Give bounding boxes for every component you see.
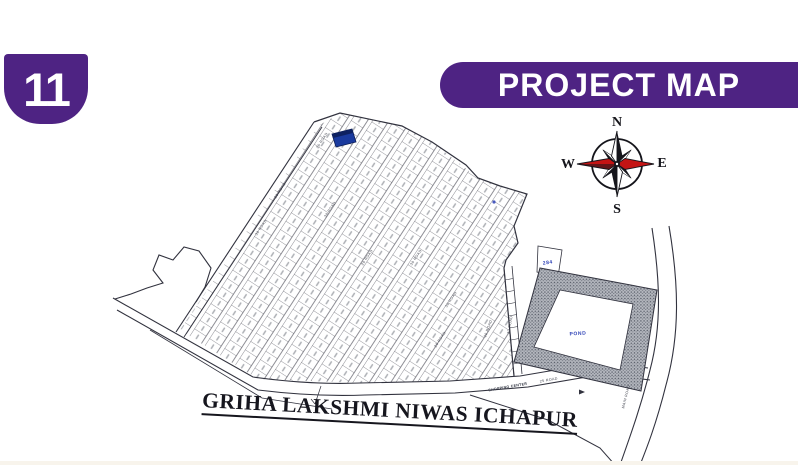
slide-bottom-edge bbox=[0, 461, 798, 465]
slide: { "slide": { "number": "11", "banner": "… bbox=[0, 0, 798, 465]
pond: POND bbox=[514, 268, 657, 391]
main-road-label: MAIN ROAD bbox=[621, 385, 631, 409]
banner-title: PROJECT MAP bbox=[498, 67, 740, 104]
pond-label: POND bbox=[569, 331, 586, 338]
road-arrow bbox=[579, 390, 585, 395]
small-blue-marker bbox=[492, 200, 495, 203]
slide-number-badge: 11 bbox=[4, 54, 88, 124]
slide-number: 11 bbox=[23, 66, 69, 113]
